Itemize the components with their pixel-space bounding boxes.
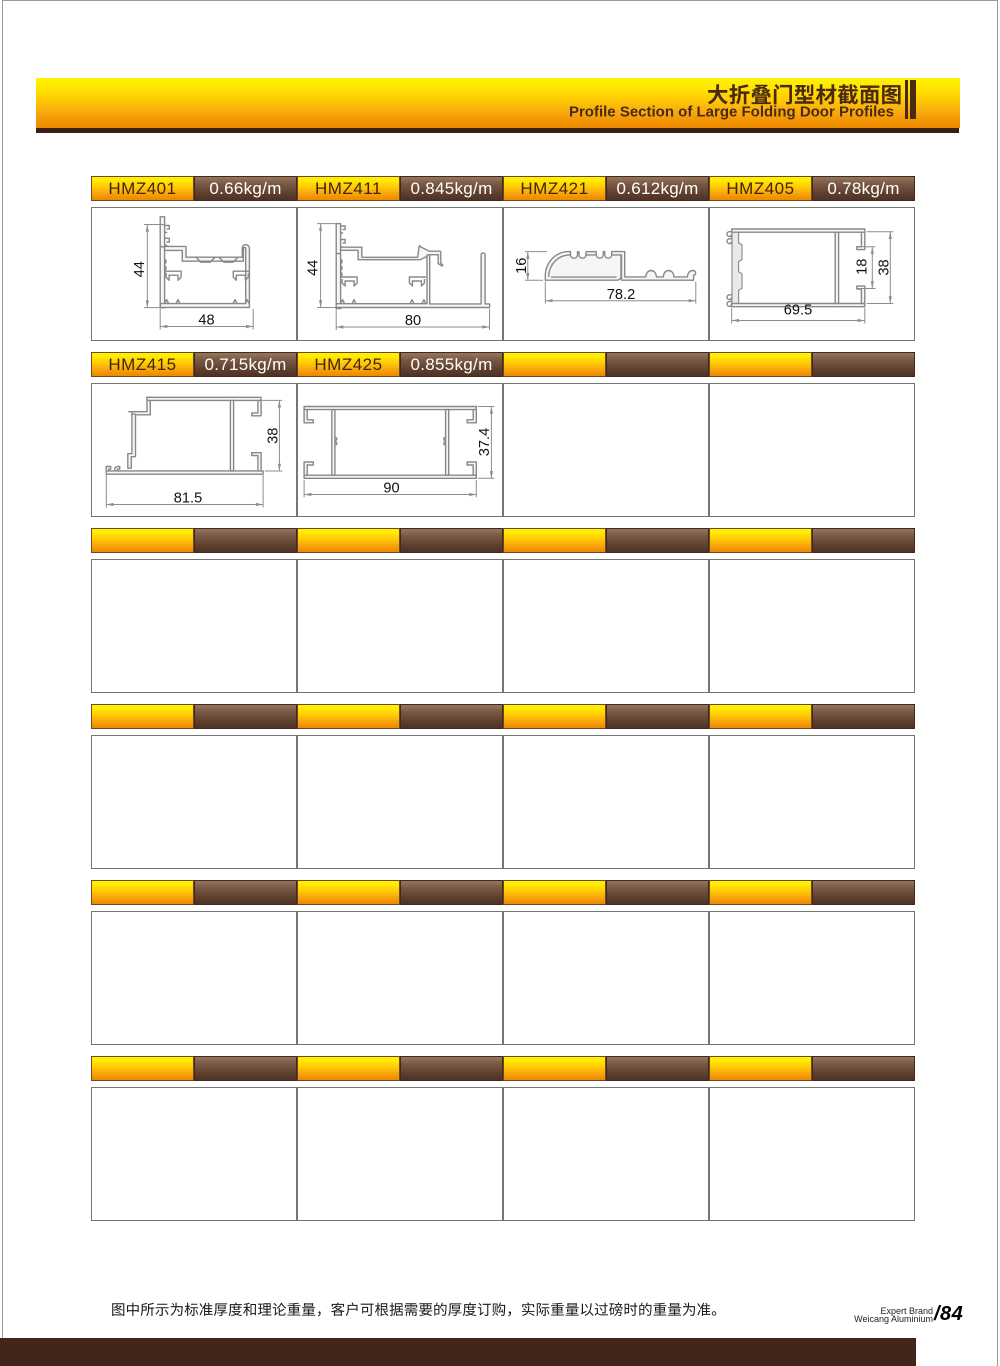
svg-text:38: 38: [265, 428, 281, 444]
svg-text:44: 44: [306, 260, 322, 276]
svg-text:37.4: 37.4: [477, 428, 493, 456]
svg-text:38: 38: [876, 259, 892, 275]
svg-text:78.2: 78.2: [607, 287, 635, 303]
svg-text:81.5: 81.5: [174, 490, 202, 506]
svg-text:18: 18: [855, 259, 871, 275]
svg-text:80: 80: [405, 313, 421, 329]
svg-text:44: 44: [132, 261, 148, 277]
svg-text:69.5: 69.5: [784, 303, 812, 319]
svg-text:90: 90: [383, 480, 399, 496]
svg-text:16: 16: [514, 258, 530, 274]
svg-text:48: 48: [198, 313, 214, 329]
